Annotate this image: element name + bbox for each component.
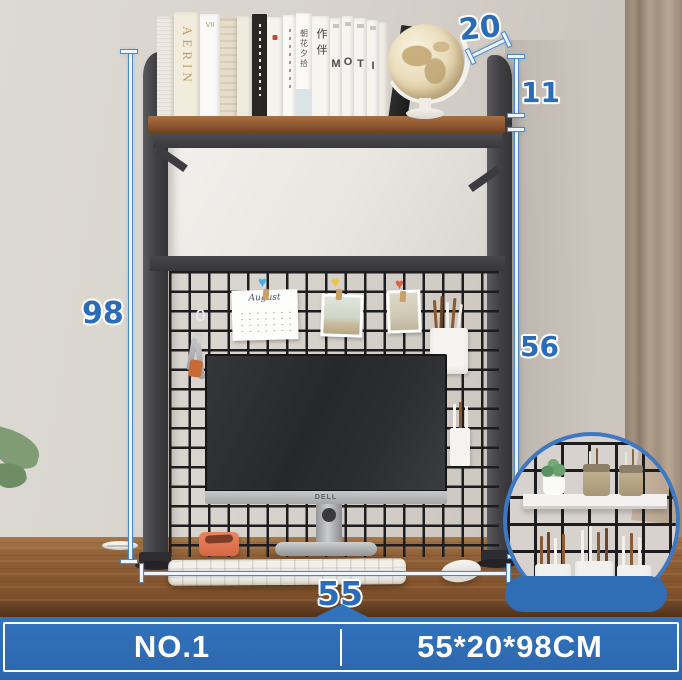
inset-plant-pot xyxy=(543,477,565,495)
inset-pen xyxy=(622,536,625,566)
globe xyxy=(388,24,464,100)
monitor-brand-logo: DELL xyxy=(315,494,337,501)
book-title: VII xyxy=(200,22,220,29)
key-fob xyxy=(188,359,203,378)
rack-back-panel xyxy=(166,148,488,258)
inset-pen xyxy=(540,536,543,566)
inset-jar xyxy=(583,469,610,496)
inset-pen xyxy=(562,534,565,566)
inset-brush xyxy=(625,452,627,466)
pen-holder-small xyxy=(450,428,470,466)
book-spine xyxy=(237,16,252,119)
inset-brush xyxy=(589,451,591,465)
monitor-screen xyxy=(205,354,447,492)
inset-brush xyxy=(596,448,598,465)
dimension-cap xyxy=(508,128,524,131)
book-spine: VII xyxy=(200,14,220,119)
monitor-bezel: DELL xyxy=(205,491,447,504)
dimension-cap xyxy=(121,560,137,563)
globe-base xyxy=(406,108,444,119)
dimension-value-inner-height: 56 xyxy=(520,330,559,363)
dimension-line-top-gap xyxy=(515,57,518,117)
cable-grommet xyxy=(102,541,138,550)
inset-pen xyxy=(581,530,584,563)
product-image: AERIN VII 朝花夕拾 作伴 M O T I August ♥ ♥ ♥ D… xyxy=(0,0,682,680)
model-number-label: NO.1 xyxy=(3,622,341,672)
badge-bar-pointer xyxy=(314,604,370,618)
pinned-photo xyxy=(320,293,363,337)
book-spine-o: O xyxy=(342,16,354,119)
dimension-value-height: 98 xyxy=(82,296,124,331)
inset-blue-pill xyxy=(505,576,667,612)
dimension-value-depth: 20 xyxy=(457,9,502,48)
rack-beam xyxy=(153,133,502,148)
wire-hook xyxy=(196,309,205,321)
book-title: 作伴 xyxy=(313,28,329,60)
book-letter: O xyxy=(342,56,354,68)
book-spine-m: M xyxy=(330,18,342,119)
inset-pen xyxy=(605,528,608,563)
pen xyxy=(465,406,468,430)
inset-shelf xyxy=(523,494,667,509)
book-spine-i: I xyxy=(367,20,379,119)
dimension-value-top-gap: 11 xyxy=(521,76,560,109)
inset-jar-lid xyxy=(583,464,610,472)
inset-pen xyxy=(597,532,600,563)
inset-pen xyxy=(554,538,557,566)
desk-organizer-cup xyxy=(199,532,239,556)
book-letter: M xyxy=(330,58,342,70)
book-spine xyxy=(220,18,237,119)
book-spine xyxy=(267,17,283,119)
pen xyxy=(459,402,462,430)
book-spine-t: T xyxy=(354,18,367,119)
book-title: AERIN xyxy=(179,26,195,86)
inset-pen xyxy=(630,533,633,566)
rack-crossbar xyxy=(150,256,505,271)
book-letter: T xyxy=(354,58,367,70)
book-spine-zhaohua: 朝花夕拾 xyxy=(296,13,312,119)
monitor-stand-base xyxy=(275,542,377,556)
inset-pen xyxy=(638,537,641,566)
inset-brush xyxy=(632,449,634,466)
dimension-cap xyxy=(508,114,524,117)
book-title: 朝花夕拾 xyxy=(299,29,310,69)
product-size-label: 55*20*98CM xyxy=(341,622,679,672)
book-spine xyxy=(283,15,296,119)
rack-top-shelf xyxy=(148,116,505,133)
book-letter: I xyxy=(367,60,379,72)
calendar-grid xyxy=(238,309,293,336)
inset-jar-lid xyxy=(619,465,643,473)
inset-jar xyxy=(619,470,643,496)
dimension-line-height xyxy=(129,52,132,563)
dimension-cap xyxy=(140,564,143,582)
pen xyxy=(453,404,456,430)
book-spine xyxy=(157,16,174,119)
monitor-cable-hole xyxy=(322,508,336,522)
inset-pen xyxy=(589,526,592,563)
book-spine-black xyxy=(252,14,267,119)
book-spine-aerin: AERIN xyxy=(174,12,200,119)
dimension-cap xyxy=(508,55,524,58)
inset-pen xyxy=(547,532,550,566)
dimension-cap xyxy=(121,50,137,53)
photo-image xyxy=(323,296,360,334)
book-spine-zuoban: 作伴 xyxy=(312,16,330,119)
